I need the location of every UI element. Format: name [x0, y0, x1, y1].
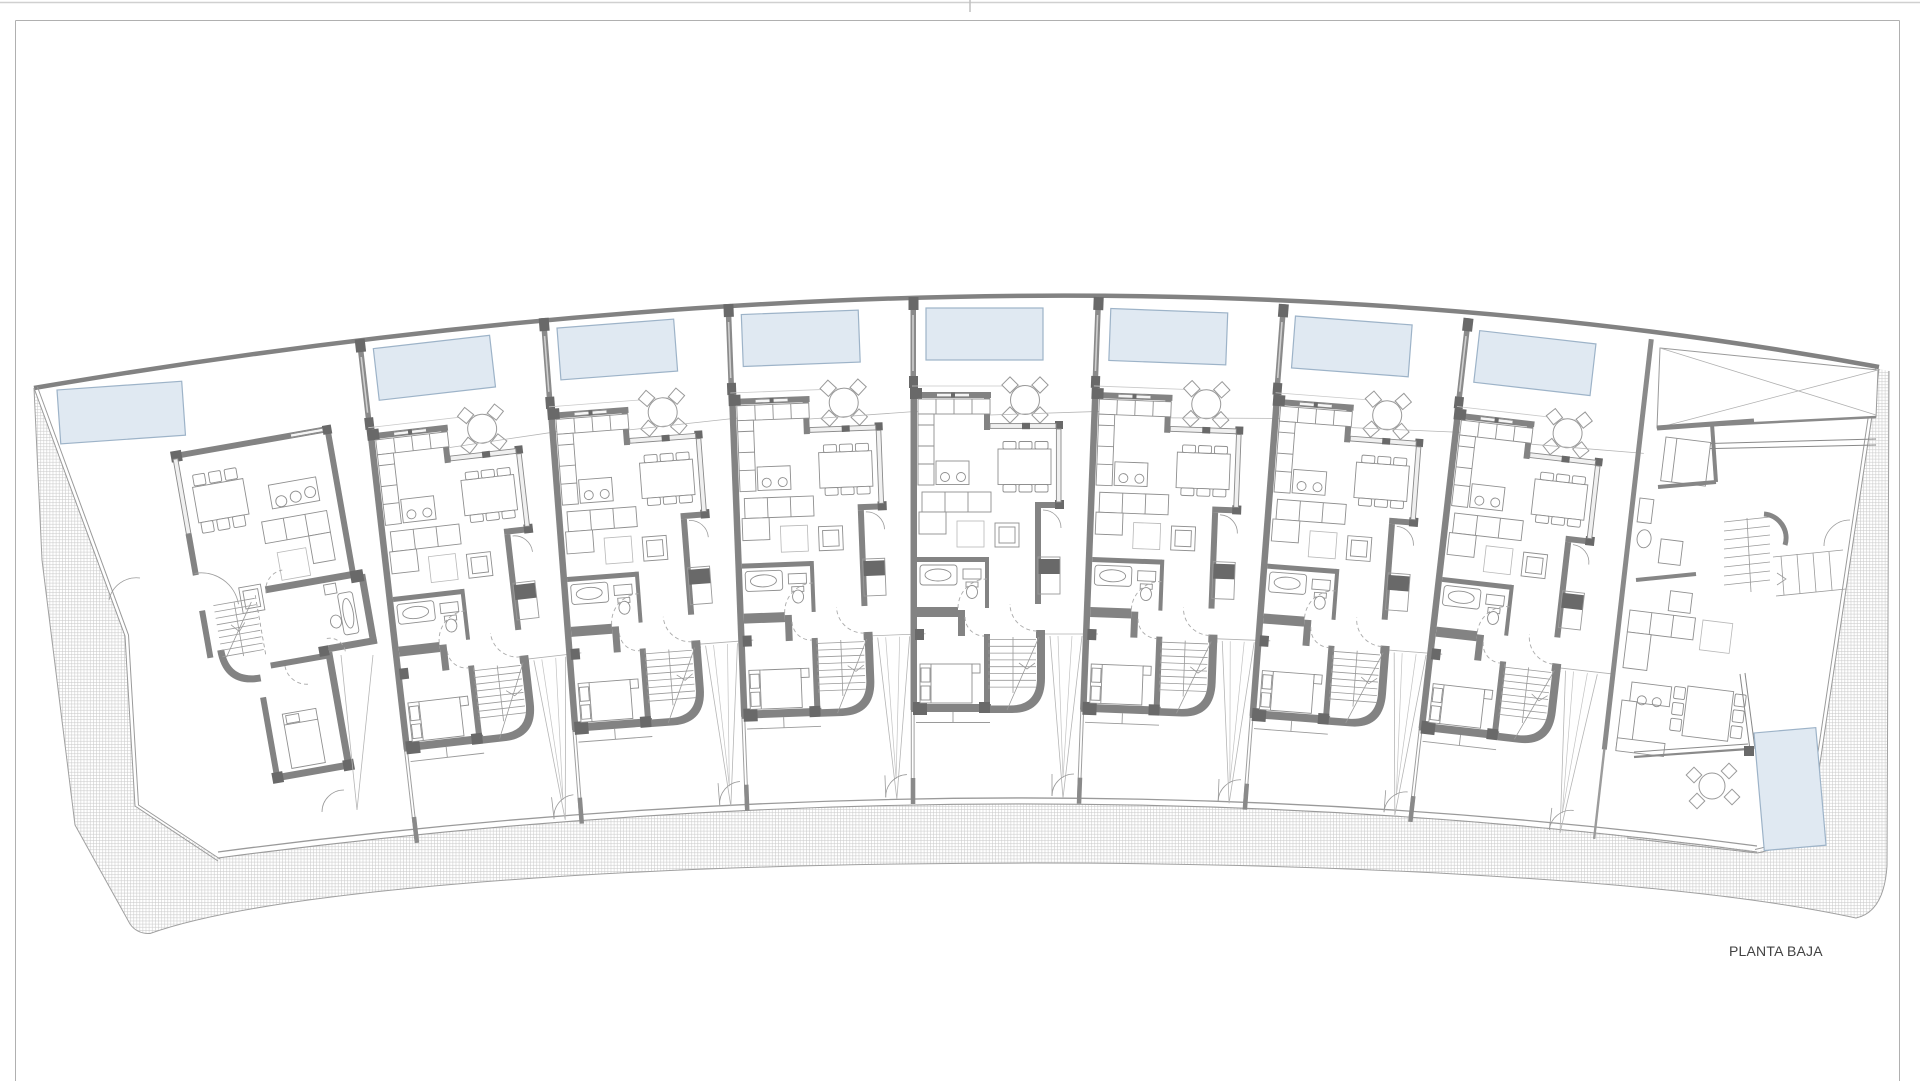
svg-text:PLANTA BAJA: PLANTA BAJA [1729, 943, 1823, 959]
